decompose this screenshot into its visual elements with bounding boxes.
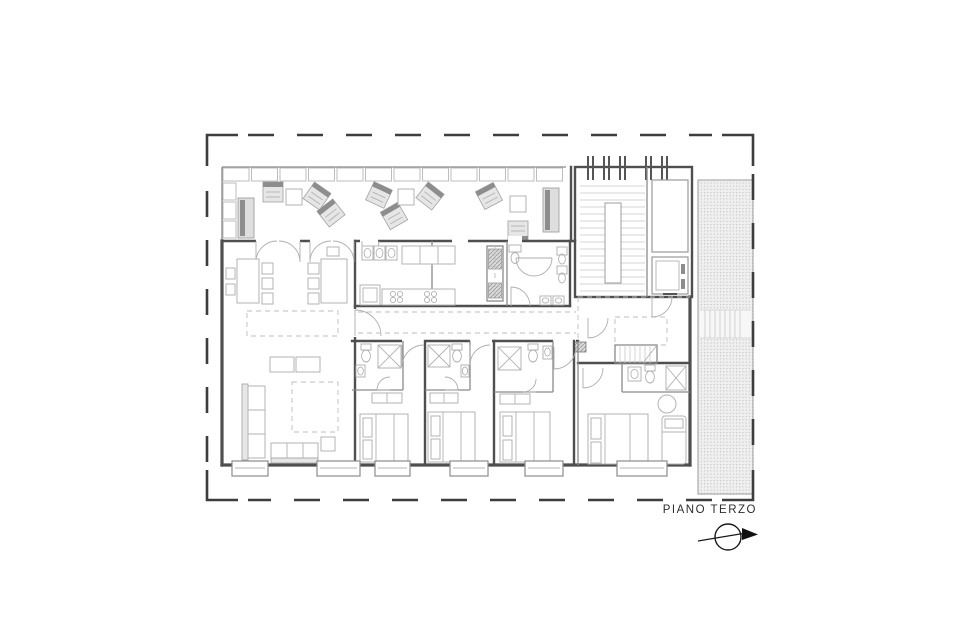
table xyxy=(615,317,667,345)
landing xyxy=(574,297,690,363)
dining-table xyxy=(308,247,347,304)
shaft xyxy=(652,180,688,252)
ensuite-bathroom xyxy=(425,341,470,390)
side-table xyxy=(398,189,414,205)
bedroom-4 xyxy=(583,363,690,464)
lounge-chair xyxy=(366,182,393,209)
rug xyxy=(292,382,338,432)
dresser xyxy=(430,393,458,403)
stair-treads xyxy=(580,186,645,291)
bathroom xyxy=(507,241,570,306)
side-table xyxy=(510,196,526,212)
service-shaft xyxy=(487,246,503,301)
bed xyxy=(360,414,408,462)
ensuite-bathroom xyxy=(622,363,690,392)
planter xyxy=(543,188,559,232)
window-bay xyxy=(525,461,563,476)
floor-plan-drawing xyxy=(0,0,960,639)
lounge-chair xyxy=(475,182,502,209)
adjacent-building-hatch xyxy=(698,180,753,494)
dresser xyxy=(372,393,402,403)
kitchen-counter xyxy=(402,246,455,264)
internal-stair xyxy=(615,345,657,363)
window-bay xyxy=(375,461,410,476)
plan-title: PIANO TERZO xyxy=(555,504,757,516)
round-table xyxy=(658,395,676,413)
kitchen-island xyxy=(360,285,455,305)
window-bay xyxy=(317,461,360,476)
bedroom-3 xyxy=(494,341,578,465)
bed xyxy=(588,414,648,464)
sofa xyxy=(242,384,265,460)
rug xyxy=(247,311,338,336)
bedroom-2 xyxy=(425,341,494,465)
bed xyxy=(500,412,550,462)
floor-plan-sheet: PIANO TERZO xyxy=(0,0,960,639)
ensuite-bathroom xyxy=(494,341,553,392)
corridor xyxy=(352,312,578,345)
lounge-chair xyxy=(416,182,444,210)
side-table xyxy=(321,437,335,451)
sofa xyxy=(271,443,318,463)
north-arrow-icon xyxy=(698,524,758,550)
terrace xyxy=(222,167,566,241)
elevator xyxy=(652,257,688,294)
window-bay xyxy=(450,461,488,476)
living-dining-room xyxy=(226,241,381,465)
planter xyxy=(238,198,254,238)
ensuite-bathroom xyxy=(352,341,403,390)
bedroom-1 xyxy=(352,341,425,465)
window-bay xyxy=(232,461,268,476)
kitchen xyxy=(355,241,570,306)
coffee-table xyxy=(270,357,320,372)
chaise xyxy=(662,416,686,464)
bed xyxy=(428,412,475,462)
window-bay xyxy=(617,461,667,476)
dresser xyxy=(500,394,530,404)
lounge-chair xyxy=(263,182,283,202)
kitchen-sinks xyxy=(362,246,397,260)
side-table xyxy=(286,189,302,205)
stairwell xyxy=(575,156,692,297)
dining-table xyxy=(226,259,273,304)
